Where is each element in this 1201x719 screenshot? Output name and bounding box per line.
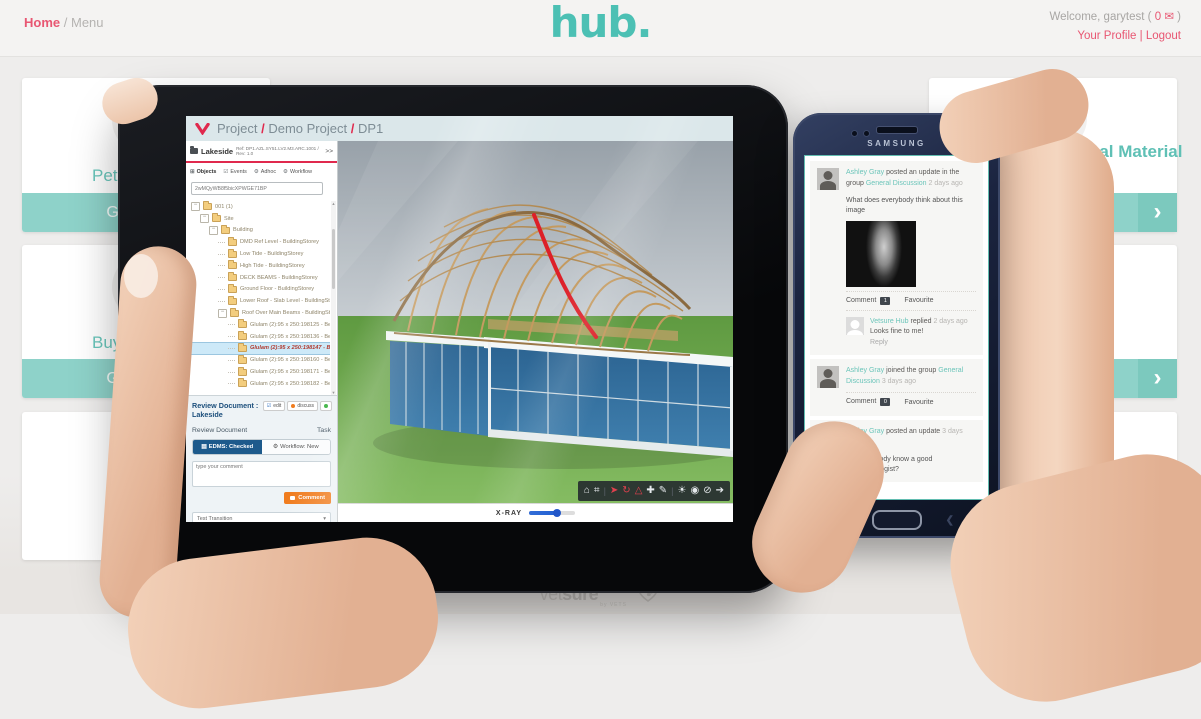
edms-status-button[interactable]: ▤EDMS: Checked xyxy=(193,440,262,454)
tree-node[interactable]: Glulam (2):95 x 250:198160 - Beam xyxy=(188,354,330,366)
xray-slider-thumb[interactable] xyxy=(553,509,561,517)
tablet-screen: Project / Demo Project / DP1 Lakeside Re… xyxy=(186,116,733,522)
light-tool-icon[interactable]: ☀ xyxy=(678,481,687,501)
proximity-sensor xyxy=(851,130,858,137)
tree-node[interactable]: High Tide - BuildingStorey xyxy=(188,260,330,272)
earpiece-speaker xyxy=(876,126,918,134)
folder-icon xyxy=(228,239,237,246)
tree-line xyxy=(218,242,225,243)
logout-link[interactable]: Logout xyxy=(1146,30,1181,42)
comment-action[interactable]: Comment0 xyxy=(846,398,890,406)
tab-adhoc[interactable]: ⚙Adhoc xyxy=(254,169,276,175)
events-icon: ☑ xyxy=(223,169,228,175)
light-sensor xyxy=(863,130,870,137)
bim-app-header: Project / Demo Project / DP1 xyxy=(186,116,733,141)
post-time: 3 days ago xyxy=(882,378,916,385)
user-menu: Welcome, garytest ( 0 ✉ ) Your Profile |… xyxy=(1049,8,1181,46)
folder-icon xyxy=(238,321,247,328)
select-tool-icon[interactable]: ➤ xyxy=(610,481,618,501)
folder-icon xyxy=(221,227,230,234)
collapse-toggle-icon[interactable]: − xyxy=(209,226,218,235)
collapse-toggle-icon[interactable]: − xyxy=(200,214,209,223)
show-all-tool-icon[interactable]: ◉ xyxy=(690,481,699,501)
speech-bubble-icon xyxy=(290,496,295,500)
folder-icon xyxy=(228,251,237,258)
group-link[interactable]: General Discussion xyxy=(866,180,927,187)
object-search-input[interactable] xyxy=(191,182,323,195)
feed-post: Ashley Gray posted an update in the grou… xyxy=(810,161,983,355)
post-time: 2 days ago xyxy=(929,180,963,187)
folder-icon xyxy=(238,345,247,352)
markup-tool-icon[interactable]: ✎ xyxy=(659,481,667,501)
post-reply: Vetsure Hub replied 2 days ago Looks fin… xyxy=(846,317,976,349)
review-subheader: Review Document Task xyxy=(192,427,331,434)
tree-node[interactable]: −Site xyxy=(188,213,330,225)
tree-scrollbar[interactable]: ▲▼ xyxy=(331,201,336,395)
left-thumb-nail xyxy=(124,254,158,298)
workflow-status-button[interactable]: ⚙Workflow: New xyxy=(262,440,331,454)
expand-panel-button[interactable]: >> xyxy=(325,148,333,155)
adhoc-icon: ⚙ xyxy=(254,169,259,175)
tree-node[interactable]: Glulam (2):95 x 250:198125 - Beam xyxy=(188,319,330,331)
feed-post: Ashley Gray joined the group General Dis… xyxy=(810,359,983,416)
collapse-toggle-icon[interactable]: − xyxy=(191,202,200,211)
comment-count-badge: 0 xyxy=(880,398,890,406)
tree-line xyxy=(228,324,235,325)
tree-node[interactable]: −Building xyxy=(188,225,330,237)
post-body: What does everybody think about this ima… xyxy=(846,196,976,216)
tree-view-tool-icon[interactable]: ⌗ xyxy=(594,481,600,501)
tree-node[interactable]: DMD Ref Level - BuildingStorey xyxy=(188,236,330,248)
site-header: Home / Menu hub. Welcome, garytest ( 0 ✉… xyxy=(0,0,1201,57)
comment-button[interactable]: Comment xyxy=(284,492,331,504)
review-mode-chips: ☑edit discuss xyxy=(263,401,332,411)
xray-control-bar: X-RAY xyxy=(338,503,733,522)
folder-icon xyxy=(238,357,247,364)
document-ref: Ref: DP1.AZL.SY51.LV2.M3.ARC.1001 / Rev:… xyxy=(236,146,322,156)
avatar[interactable] xyxy=(817,168,839,190)
post-actions: Comment0 Favourite xyxy=(846,392,976,411)
status-toggle[interactable] xyxy=(320,401,332,411)
reply-body: Looks fine to me! xyxy=(870,327,968,338)
status-dot-icon xyxy=(324,404,328,408)
tree-line xyxy=(228,372,235,373)
object-tree: −001 (1) −Site −Building DMD Ref Level -… xyxy=(188,201,330,395)
app-logo-chevron-icon xyxy=(195,123,210,135)
folder-icon xyxy=(238,380,247,387)
reply-time: 2 days ago xyxy=(933,318,967,325)
tree-line xyxy=(228,360,235,361)
mail-icon[interactable]: ✉ xyxy=(1164,11,1174,23)
home-button[interactable] xyxy=(872,510,922,530)
gear-icon: ⚙ xyxy=(273,444,278,450)
panel-tabs: ⊞Objects ☑Events ⚙Adhoc ⚙Workflow xyxy=(186,165,337,179)
document-header: Lakeside Ref: DP1.AZL.SY51.LV2.M3.ARC.10… xyxy=(186,141,337,163)
tree-node[interactable]: Glulam (2):95 x 250:198171 - Beam xyxy=(188,366,330,378)
chevron-right-icon: › xyxy=(1138,359,1177,398)
select-caret-icon: ▾ xyxy=(323,516,326,522)
favourite-action[interactable]: Favourite xyxy=(904,297,933,304)
hub-logo[interactable]: hub. xyxy=(0,0,1201,47)
tree-line xyxy=(218,289,225,290)
task-label: Task xyxy=(317,427,331,434)
message-count[interactable]: 0 xyxy=(1155,11,1161,23)
tree-node[interactable]: Glulam (2):95 x 250:198136 - Beam xyxy=(188,331,330,343)
tree-line xyxy=(218,301,225,302)
back-icon[interactable]: ❮ xyxy=(946,515,954,526)
comment-textarea[interactable] xyxy=(192,461,331,487)
tree-node[interactable]: Low Tide - BuildingStorey xyxy=(188,248,330,260)
document-folder-icon xyxy=(190,148,198,154)
xray-slider[interactable] xyxy=(529,511,575,515)
folder-icon xyxy=(228,286,237,293)
object-panel: Lakeside Ref: DP1.AZL.SY51.LV2.M3.ARC.10… xyxy=(186,141,338,522)
comment-count-badge: 1 xyxy=(880,297,890,305)
pan-tool-icon[interactable]: ✚ xyxy=(646,481,654,501)
tree-node[interactable]: −001 (1) xyxy=(188,201,330,213)
post-actions: Comment1 Favourite xyxy=(846,291,976,311)
avatar[interactable] xyxy=(846,317,864,335)
hide-tool-icon[interactable]: ⊘ xyxy=(703,481,711,501)
profile-link[interactable]: Your Profile xyxy=(1077,30,1136,42)
reply-link[interactable]: Reply xyxy=(870,338,968,349)
collapse-toggle-icon[interactable]: − xyxy=(218,309,227,318)
tablet-device: Project / Demo Project / DP1 Lakeside Re… xyxy=(118,85,788,593)
tab-workflow[interactable]: ⚙Workflow xyxy=(283,169,312,175)
review-panel: Review Document : Lakeside ☑edit discuss… xyxy=(186,395,337,522)
folder-icon xyxy=(228,262,237,269)
tree-line xyxy=(228,348,235,349)
tree-node[interactable]: Glulam (2):95 x 250:198182 - Beam xyxy=(188,378,330,390)
post-header: Ashley Gray joined the group General Dis… xyxy=(846,366,976,388)
orbit-tool-icon[interactable]: ↻ xyxy=(622,481,630,501)
tree-node[interactable]: Ground Floor - BuildingStorey xyxy=(188,284,330,296)
folder-icon xyxy=(238,369,247,376)
tree-node[interactable]: DECK BEAMS - BuildingStorey xyxy=(188,272,330,284)
walk-tool-icon[interactable]: ➔ xyxy=(716,481,724,501)
xray-photo[interactable] xyxy=(846,221,916,287)
folder-icon xyxy=(228,298,237,305)
tree-line xyxy=(228,383,235,384)
viewer-toolbar: ⌂ ⌗ | ➤ ↻ △ ✚ ✎ | ☀ ◉ ⊘ ➔ xyxy=(578,481,730,501)
tree-line xyxy=(218,277,225,278)
tab-events[interactable]: ☑Events xyxy=(223,169,246,175)
tree-line xyxy=(228,336,235,337)
folder-icon xyxy=(228,274,237,281)
author-link[interactable]: Vetsure Hub xyxy=(870,318,909,325)
workflow-icon: ⚙ xyxy=(283,169,288,175)
tab-objects[interactable]: ⊞Objects xyxy=(190,169,216,175)
checkbox-icon: ☑ xyxy=(267,403,271,409)
folder-icon xyxy=(238,333,247,340)
author-link[interactable]: Ashley Gray xyxy=(846,169,884,176)
measure-tool-icon[interactable]: △ xyxy=(635,481,643,501)
document-icon: ▤ xyxy=(201,444,206,450)
favourite-action[interactable]: Favourite xyxy=(904,399,933,406)
tree-node[interactable]: −Roof Over Main Beams - BuildingStorey xyxy=(188,307,330,319)
tree-line xyxy=(218,265,225,266)
author-link[interactable]: Ashley Gray xyxy=(846,367,884,374)
status-segments: ▤EDMS: Checked ⚙Workflow: New xyxy=(192,439,331,455)
3d-model-viewport[interactable]: ⌂ ⌗ | ➤ ↻ △ ✚ ✎ | ☀ ◉ ⊘ ➔ xyxy=(338,141,733,504)
building-model xyxy=(338,141,733,504)
avatar[interactable] xyxy=(817,366,839,388)
tree-node[interactable]: Lower Roof - Slab Level - BuildingStorey xyxy=(188,295,330,307)
project-breadcrumb: Project / Demo Project / DP1 xyxy=(217,121,383,136)
xray-label: X-RAY xyxy=(496,510,522,517)
comment-action[interactable]: Comment1 xyxy=(846,297,890,305)
discuss-toggle[interactable]: discuss xyxy=(287,401,318,411)
welcome-text: Welcome, garytest ( 0 ✉ ) xyxy=(1049,8,1181,27)
folder-icon xyxy=(203,203,212,210)
post-header: Ashley Gray posted an update in the grou… xyxy=(846,168,976,190)
tree-line xyxy=(218,254,225,255)
folder-icon xyxy=(230,310,239,317)
document-name[interactable]: Lakeside xyxy=(201,147,233,156)
folder-icon xyxy=(212,215,221,222)
objects-icon: ⊞ xyxy=(190,169,195,175)
edit-toggle[interactable]: ☑edit xyxy=(263,401,286,411)
discuss-dot-icon xyxy=(291,404,295,408)
tree-node-selected[interactable]: Glulam (2):95 x 250:198147 - Beam xyxy=(188,343,330,355)
chevron-right-icon: › xyxy=(1138,193,1177,232)
home-tool-icon[interactable]: ⌂ xyxy=(584,481,590,501)
transition-select[interactable]: Test Transition ▾ xyxy=(192,512,331,522)
